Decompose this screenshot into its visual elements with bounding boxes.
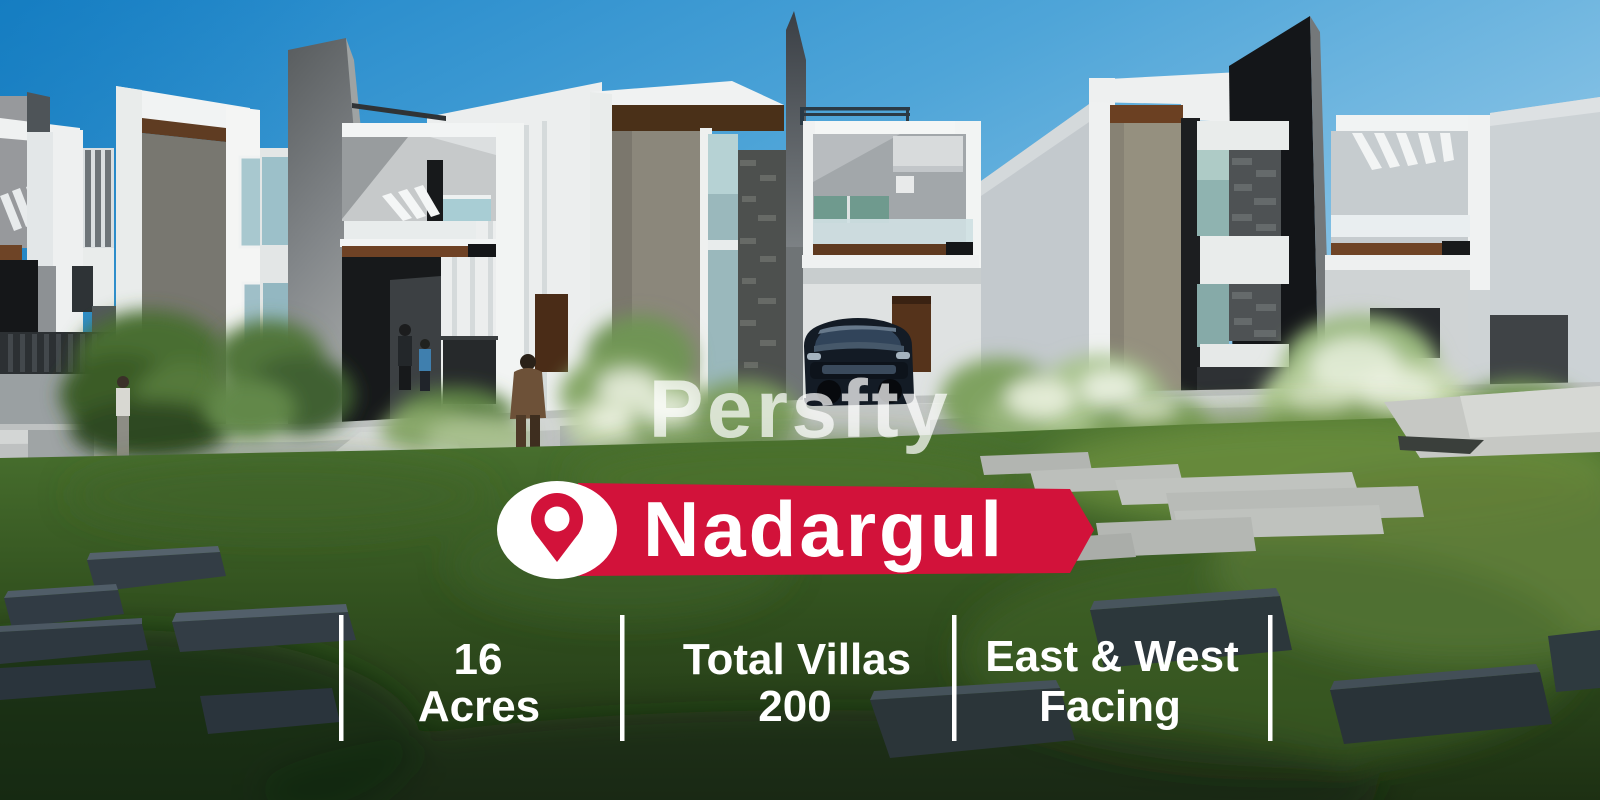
svg-text:16: 16 bbox=[454, 635, 503, 684]
svg-text:Nadargul: Nadargul bbox=[643, 485, 1005, 573]
svg-text:Persfty: Persfty bbox=[649, 364, 952, 455]
svg-text:Total Villas: Total Villas bbox=[683, 635, 911, 684]
svg-text:Facing: Facing bbox=[1039, 682, 1181, 731]
svg-text:East & West: East & West bbox=[985, 632, 1239, 681]
svg-text:200: 200 bbox=[758, 682, 831, 731]
svg-text:Acres: Acres bbox=[418, 682, 540, 731]
